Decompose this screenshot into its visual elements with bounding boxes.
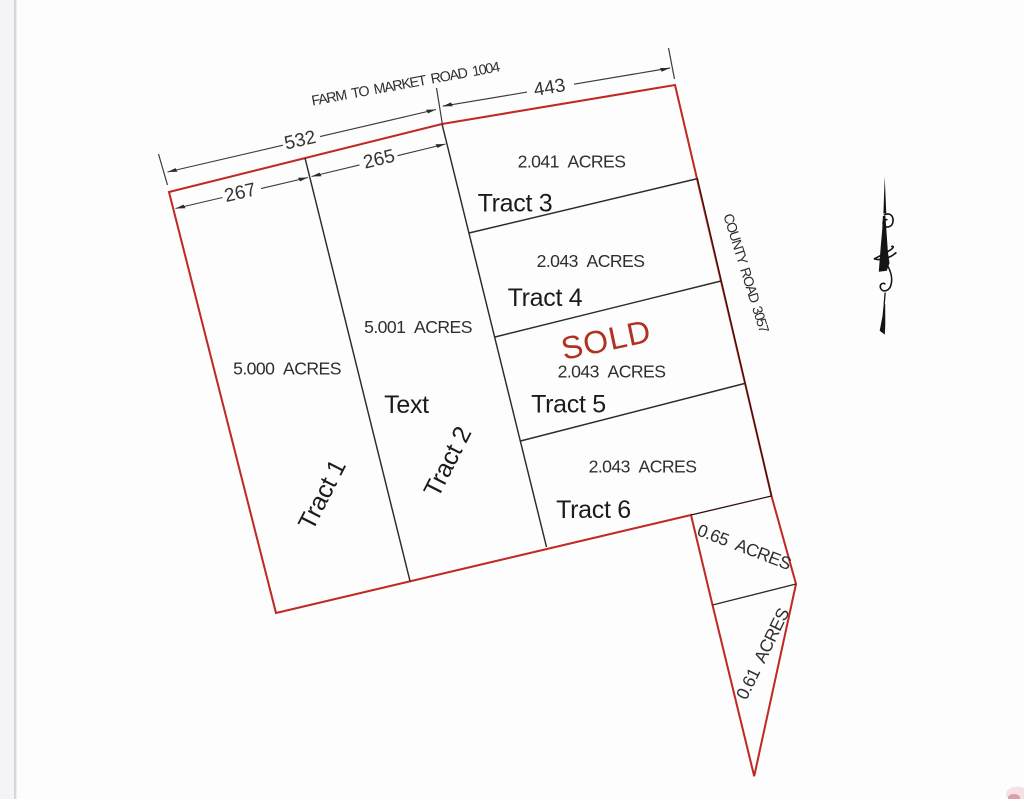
svg-text:5.000 ACRES: 5.000 ACRES [233, 359, 341, 379]
svg-text:Tract 4: Tract 4 [508, 284, 583, 312]
svg-text:2.043 ACRES: 2.043 ACRES [537, 251, 645, 271]
svg-text:5.001 ACRES: 5.001 ACRES [364, 317, 472, 337]
svg-text:Text: Text [384, 391, 429, 419]
svg-text:2.041 ACRES: 2.041 ACRES [518, 152, 626, 172]
svg-text:2.043 ACRES: 2.043 ACRES [558, 362, 666, 382]
svg-text:Tract 3: Tract 3 [478, 190, 553, 218]
svg-text:Tract 6: Tract 6 [556, 496, 631, 524]
svg-text:2.043 ACRES: 2.043 ACRES [589, 457, 697, 477]
svg-text:Tract 5: Tract 5 [531, 391, 606, 419]
